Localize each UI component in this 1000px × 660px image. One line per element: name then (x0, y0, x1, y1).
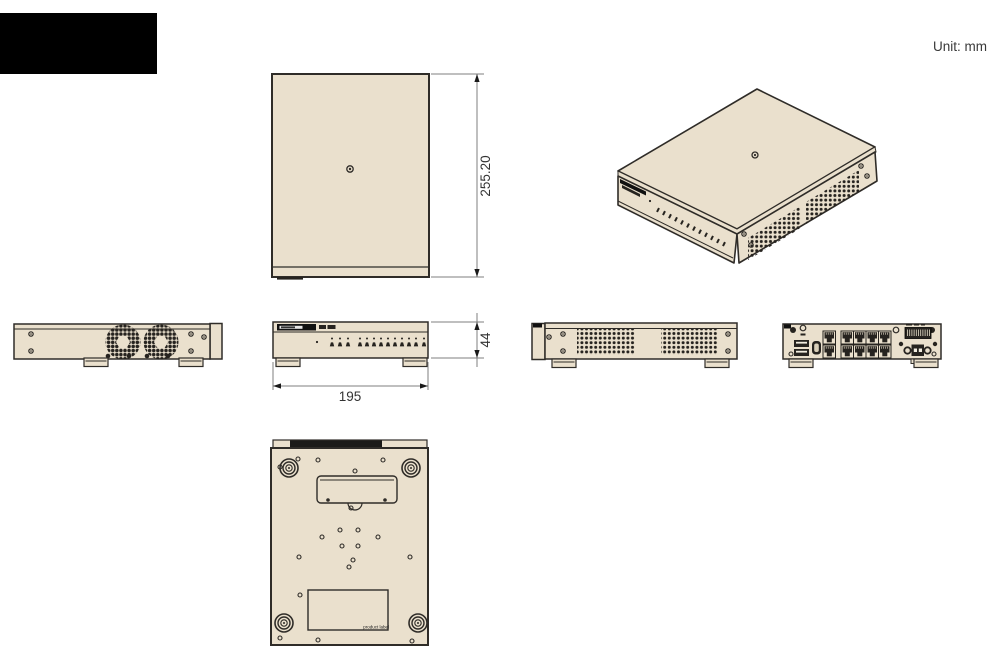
iso-front-reset-hole (649, 200, 651, 202)
redacted-logo-block (0, 13, 157, 74)
arrowhead-up (474, 322, 479, 330)
front-model-mark (319, 325, 326, 329)
bottom-view-rear-dark-mark (290, 441, 382, 448)
poe-port (866, 331, 879, 344)
rear-small-mark (801, 334, 806, 336)
power-led (316, 341, 318, 343)
rear-corner-screw (790, 327, 796, 333)
rubber-foot (402, 459, 420, 477)
hdmi-port (812, 341, 821, 355)
poe-port (854, 345, 867, 358)
poe-port (879, 345, 892, 358)
poe-port-grid (841, 331, 891, 358)
right-view-vent-grid (661, 329, 718, 355)
arrowhead-down (474, 269, 479, 277)
arrowhead-up (474, 74, 479, 82)
poe-port (866, 345, 879, 358)
chassis-foot (914, 359, 938, 368)
chassis-foot (403, 358, 427, 367)
arrowhead-left (273, 383, 281, 388)
front-model-mark (328, 325, 336, 329)
bottom-view-outline (271, 448, 428, 645)
top-view (272, 74, 429, 280)
arrowhead-right (420, 383, 428, 388)
dimension-depth-value: 255.20 (478, 155, 493, 196)
dimensional-drawing-page: Unit: mm 255.20 (0, 0, 1000, 660)
chassis-foot (789, 359, 813, 368)
dimension-depth (431, 74, 484, 277)
rubber-foot (280, 459, 298, 477)
poe-port (854, 331, 867, 344)
chassis-foot (179, 358, 203, 367)
poe-port (879, 331, 892, 344)
chassis-foot (552, 359, 576, 368)
arrowhead-down (474, 350, 479, 358)
dimension-height-value: 44 (478, 332, 493, 348)
chassis-foot (276, 358, 300, 367)
hatch-screw (326, 498, 330, 502)
rear-screw (933, 342, 937, 346)
front-logo-badge (277, 324, 316, 331)
bottom-view: product label (271, 440, 428, 645)
rear-screw (899, 342, 903, 346)
dimension-height (431, 313, 484, 367)
lan-port (823, 345, 836, 358)
hatch-screw (383, 498, 387, 502)
drawing-canvas: Unit: mm 255.20 (0, 0, 1000, 660)
poe-port (841, 331, 854, 344)
right-side-view (532, 323, 737, 368)
top-view-front-detail (277, 277, 303, 280)
right-view-bezel-mark (533, 324, 542, 328)
left-side-view (14, 324, 222, 367)
chassis-foot (84, 358, 108, 367)
lan-port (823, 331, 836, 344)
poe-port (841, 345, 854, 358)
front-view (273, 322, 428, 367)
product-label-text: product label (363, 625, 389, 630)
isometric-view (618, 89, 877, 263)
chassis-foot (705, 359, 729, 368)
rubber-foot (409, 614, 427, 632)
left-view-front-bezel (210, 324, 222, 360)
unit-label: Unit: mm (933, 39, 987, 54)
top-view-outline (272, 74, 429, 277)
right-view-front-bezel (532, 324, 545, 360)
rear-corner-mark (784, 325, 791, 329)
dimension-width-value: 195 (339, 389, 362, 404)
rear-view (783, 324, 941, 368)
right-view-vent-grid (577, 329, 635, 355)
rubber-foot (275, 614, 293, 632)
